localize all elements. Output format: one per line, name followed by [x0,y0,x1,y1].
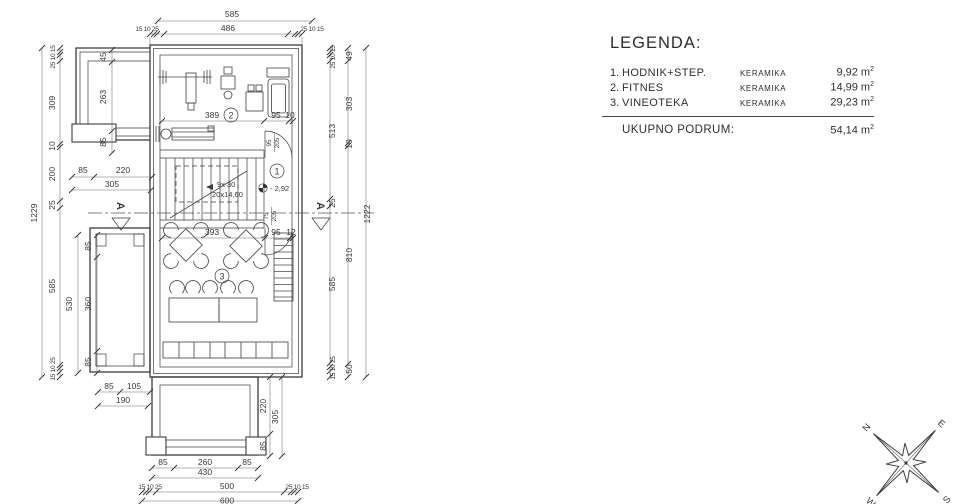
chair [203,281,218,294]
dim-label: 25 10 15 [50,45,57,69]
legend-item-material: KERAMIKA [740,84,822,93]
dim-label: 85 [104,381,114,391]
dim-label: 85 [242,457,252,467]
legend-item-material: KERAMIKA [740,69,822,78]
chair [252,219,271,238]
dimension-lines [39,18,369,504]
area-superscript: 2 [870,81,874,88]
dim-label: 85 [78,165,88,175]
chair [186,281,201,294]
dim-label: 15 10 25 [50,357,57,381]
area-value: 29,23 m [830,97,870,109]
dim-label: 10 [47,141,57,151]
legend-total-area: 54,14 m2 [822,124,878,137]
legend-divider [602,116,874,117]
rowing-machine-icon [156,126,214,142]
chair [221,281,236,294]
dim-label: 85 [83,241,93,251]
legend-item: 3. VINEOTEKA KERAMIKA 29,23 m2 [600,96,878,111]
dim-label: 85 [98,137,108,147]
legend-item-name: HODNIK+STEP. [622,67,740,79]
dim-label: 220 [116,165,130,175]
dim-label: 25 [47,200,57,210]
dim-label: 15 10 25 [138,484,162,491]
legend-item-area: 9,92 m2 [822,66,878,79]
dim-label: 1229 [29,203,39,222]
dim-label: 360 [83,297,93,311]
dim-label: 200 [47,167,57,181]
staircase: 9x 30 20x14,60 [166,158,256,220]
dim-label: 25 10 15 [300,26,324,33]
legend-item: 1. HODNIK+STEP. KERAMIKA 9,92 m2 [600,66,878,81]
chair [160,252,179,271]
legend-item-name: VINEOTEKA [622,97,740,109]
area-superscript: 2 [870,66,874,73]
area-superscript: 2 [870,96,874,103]
dim-label: 10 [344,139,354,149]
wine-rack-bottom [163,342,288,358]
dim-label: 15 10 25 [135,26,159,33]
dimension-labels: 585 15 10 25 486 25 10 15 1229 25 10 15 … [29,9,372,504]
dim-label: 260 [198,457,212,467]
dim-label: 85 [258,441,268,451]
dim-label: 263 [98,90,108,104]
bench-press-icon [158,70,212,110]
annex-bottom-left [90,228,150,372]
dim-label: 105 [127,381,141,391]
dim-label: 12 [286,227,296,237]
legend-item-area: 29,23 m2 [822,96,878,109]
dim-label: 85 [83,357,93,367]
dim-label: 600 [220,496,234,504]
legend-item-number: 2. [600,82,622,94]
legend-item-number: 1. [600,67,622,79]
dim-label: 393 [205,227,219,237]
dim-label: 585 [225,9,239,19]
dim-label: 10 [285,110,295,120]
room-number-1: 1 [270,164,284,178]
section-arrow-icon [312,218,330,230]
annex-top-left [72,48,150,142]
chair [192,252,211,271]
dim-label: 305 [270,410,280,424]
elevation-marker: - 2,92 [259,184,289,193]
dim-label: 500 [220,481,234,491]
legend-total-row: UKUPNO PODRUM: 54,14 m2 [600,124,878,137]
room-number-label: 1 [274,167,279,177]
legend-rows: 1. HODNIK+STEP. KERAMIKA 9,92 m2 2. FITN… [600,66,878,112]
dim-label: 389 [205,110,219,120]
basement-floor-plan-sheet: 9x 30 20x14,60 95 205 75 205 [0,0,960,504]
wine-room-furniture [160,219,293,358]
exercise-machine-icon [221,67,235,99]
elevation-value: - 2,92 [270,184,289,193]
dim-label: 25 10 15 [285,484,309,491]
area-value: 9,92 m [836,67,870,79]
area-superscript: 2 [870,124,874,131]
dim-label: 25 [327,198,337,208]
legend-item: 2. FITNES KERAMIKA 14,99 m2 [600,81,878,96]
legend-title: LEGENDA: [610,34,878,53]
stair-risers-label: 20x14,60 [212,190,243,199]
chair [220,252,239,271]
dim-label: 45 [98,52,108,62]
door-size-label: 205 [274,137,281,148]
long-table [219,298,257,322]
compass-east-label: E [935,418,947,430]
door-size-label: 95 [266,139,273,147]
area-value: 14,99 m [830,82,870,94]
compass-south-label: S [941,494,953,504]
dim-label: 1222 [362,204,372,223]
dim-label: 50 [344,364,354,374]
chair [220,219,239,238]
dim-label: 486 [221,23,235,33]
door-size-label: 205 [271,210,278,221]
area-value: 54,14 m [830,124,870,136]
square-table [230,230,263,263]
dim-label: 305 [105,179,119,189]
legend-panel: LEGENDA: 1. HODNIK+STEP. KERAMIKA 9,92 m… [600,34,878,136]
dim-label: 85 [158,457,168,467]
wine-shelf-right [274,233,293,301]
dim-label: 585 [327,277,337,291]
legend-item-material: KERAMIKA [740,99,822,108]
dim-label: 220 [258,399,268,413]
dim-label: 585 [47,279,57,293]
dim-label: 49 [344,51,354,61]
compass-west-label: W [863,496,877,504]
dim-label: 513 [327,124,337,138]
door-swing-fitness: 95 205 [265,131,292,158]
room-number-label: 2 [228,111,233,121]
gym-equipment [156,67,289,142]
long-table [169,298,219,322]
dim-label: 309 [47,96,57,110]
stair-steps-label: 9x 30 [217,180,235,189]
room-number-3: 3 [215,269,229,283]
weight-station-icon [246,85,263,111]
dim-label: 810 [344,248,354,262]
section-label-left: A [114,202,126,210]
dim-label: 25 10 15 [330,45,337,69]
square-table [170,229,203,262]
legend-total-label: UKUPNO PODRUM: [622,124,822,136]
room-number-label: 3 [219,272,224,282]
dim-label: 15 10 25 [330,356,337,380]
legend-item-number: 3. [600,97,622,109]
dim-label: 303 [344,97,354,111]
compass-rose-icon: N E S W [823,381,960,504]
dim-label: 530 [64,297,74,311]
dim-label: 95 [271,110,281,120]
dim-label: 95 [271,227,281,237]
compass-north-label: N [861,422,874,435]
room-number-2: 2 [224,108,238,122]
legend-item-name: FITNES [622,82,740,94]
dim-label: 190 [116,395,130,405]
chair [239,281,254,294]
building-walls [150,37,302,377]
annex-bottom-lightwell [146,377,266,455]
legend-item-area: 14,99 m2 [822,81,878,94]
section-label-right: A [314,202,326,210]
chair [170,281,185,294]
dim-label: 430 [198,467,212,477]
